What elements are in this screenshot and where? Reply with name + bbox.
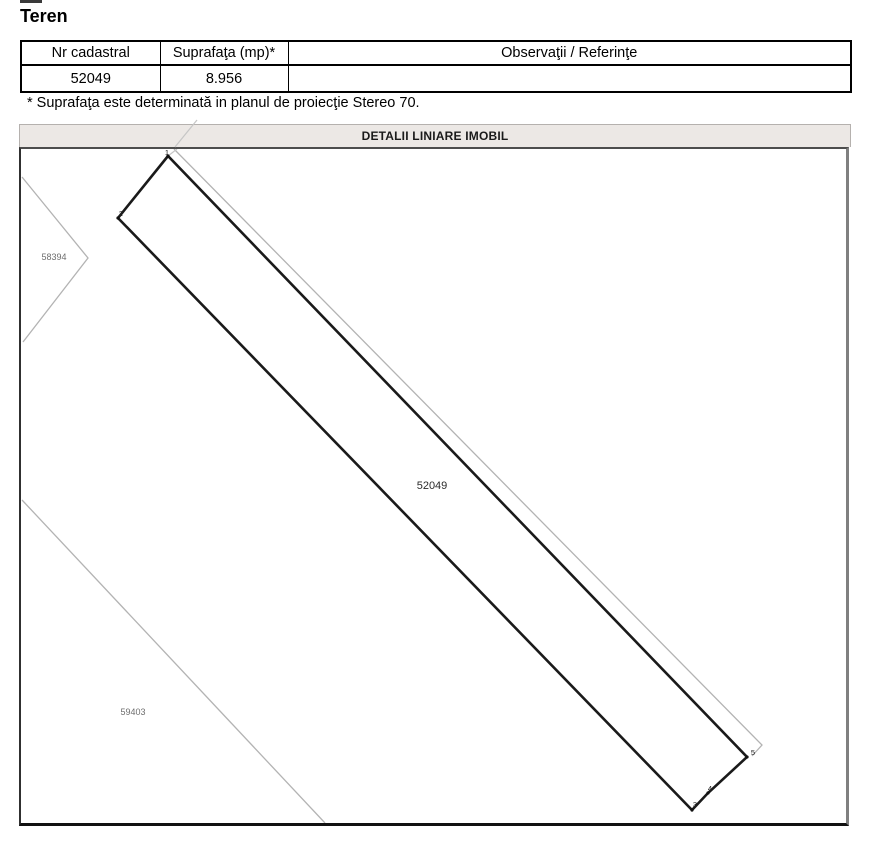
vertex-5-marker [745,755,748,758]
vertex-5-label: 5 [751,748,755,757]
cadastral-document-page: { "page": { "title": "Teren" }, "table":… [0,0,874,856]
map-canvas: 1 2 3 4 5 52049 58394 59403 [21,149,846,823]
cell-nr-cadastral: 52049 [21,65,160,92]
vertex-4-label: 4 [708,784,712,793]
col-header-nr-cadastral: Nr cadastral [21,41,160,65]
cropped-element-remnant [20,0,42,3]
col-header-observatii: Observaţii / Referinţe [288,41,851,65]
table-row: 52049 8.956 [21,65,851,92]
parcel-52049-label: 52049 [417,480,448,492]
cell-suprafata: 8.956 [160,65,288,92]
parallel-neighbor-line [174,149,762,756]
col-header-suprafata: Suprafaţa (mp)* [160,41,288,65]
map-section-header: DETALII LINIARE IMOBIL [19,124,851,147]
parcel-summary-table: Nr cadastral Suprafaţa (mp)* Observaţii … [20,40,852,93]
neighbor-58394-label: 58394 [41,252,66,262]
boundary-extension-line [168,118,204,148]
vertex-3-label: 3 [693,800,697,809]
boundary-extension-inner [168,149,177,156]
map-section-title: DETALII LINIARE IMOBIL [362,129,509,143]
vertex-2-label: 2 [119,209,123,218]
cadastral-sketch-map: 1 2 3 4 5 52049 58394 59403 [19,147,849,826]
vertex-1-label: 1 [165,149,169,157]
cell-observatii [288,65,851,92]
surface-footnote: * Suprafaţa este determinată in planul d… [27,95,420,111]
table-header-row: Nr cadastral Suprafaţa (mp)* Observaţii … [21,41,851,65]
neighbor-59403-label: 59403 [120,707,145,717]
page-title: Teren [20,6,68,27]
neighbor-59403-boundary [22,500,325,823]
